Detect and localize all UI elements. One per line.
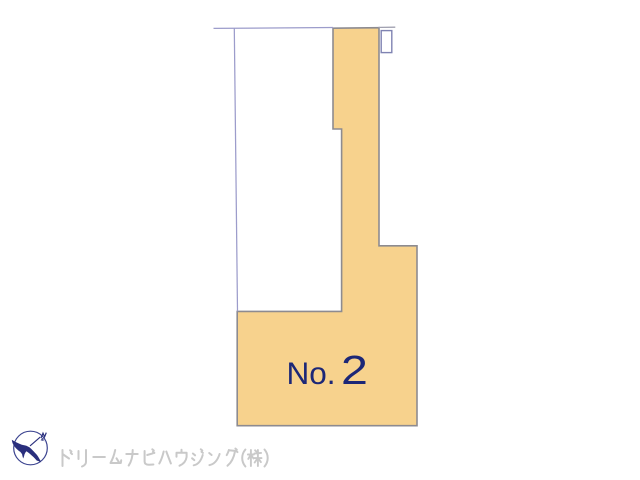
svg-text:2: 2 — [341, 347, 368, 394]
svg-text:No.: No. — [287, 355, 336, 391]
